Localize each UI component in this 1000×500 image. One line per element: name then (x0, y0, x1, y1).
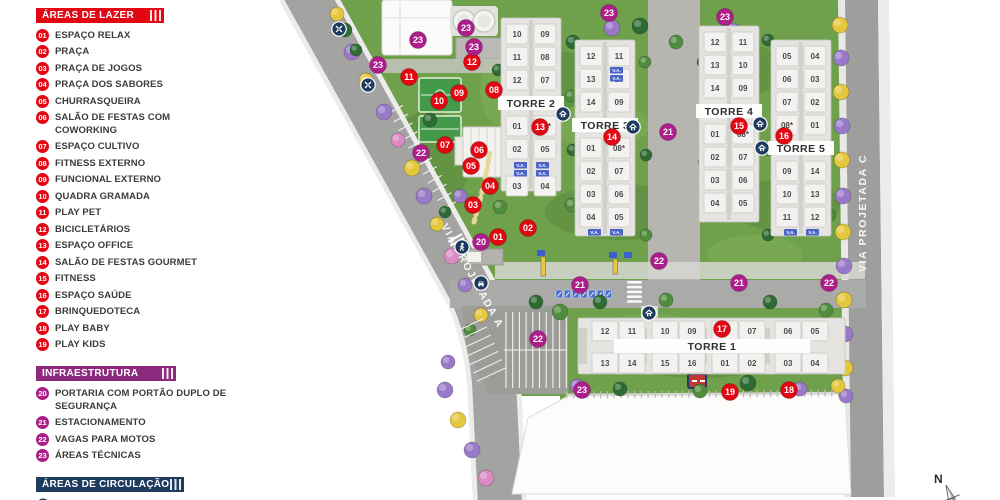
tree-icon (835, 188, 851, 204)
pedestrian-access-icon (455, 240, 469, 254)
unit-label: 11 (739, 38, 748, 47)
legend-section-lazer: ÁREAS DE LAZER 01ESPAÇO RELAX02PRAÇA03PR… (36, 8, 251, 351)
legend-number-badge: 01 (36, 29, 49, 42)
map-marker-infra-21: 21 (660, 124, 677, 141)
legend-header-lazer-text: ÁREAS DE LAZER (42, 10, 134, 21)
legend-header-lazer: ÁREAS DE LAZER (36, 8, 164, 23)
hall-access-icon (755, 141, 769, 155)
unit-label: 13 (811, 190, 820, 199)
unit-label: 02 (513, 145, 522, 154)
header-stripes-icon (170, 479, 181, 490)
tower-torre-2: 10111209080701020306*0504V.A.V.A.V.A.V.A… (498, 18, 564, 196)
unit-label: 05 (615, 213, 624, 222)
unit-label: 03 (784, 359, 793, 368)
unit-label: 12 (513, 76, 522, 85)
unit-label: 16 (688, 359, 697, 368)
map-marker-number: 16 (779, 131, 789, 141)
legend-header-circulacao-text: ÁREAS DE CIRCULAÇÃO (42, 479, 169, 490)
unit-label: 06 (739, 176, 748, 185)
map-marker-number: 11 (404, 72, 414, 82)
unit-label: 06 (615, 190, 624, 199)
map-marker-number: 15 (734, 121, 744, 131)
map-marker-number: 23 (373, 60, 383, 70)
unit-label: 12 (711, 38, 720, 47)
map-marker-number: 04 (485, 181, 495, 191)
legend-item-21: 21ESTACIONAMENTO (36, 416, 251, 429)
unit-label: 05 (739, 199, 748, 208)
legend-item-18: 18PLAY BABY (36, 322, 251, 335)
unit-label: 06 (784, 327, 793, 336)
map-marker-number: 10 (434, 96, 444, 106)
unit-label: 07 (739, 153, 748, 162)
legend-number-badge: 02 (36, 45, 49, 58)
unit-label: 09 (739, 84, 748, 93)
unit-label: 02 (711, 153, 720, 162)
va-badge-label: V.A. (538, 163, 547, 168)
map-marker-number: 23 (413, 35, 423, 45)
legend-item-label: QUADRA GRAMADA (55, 190, 230, 203)
map-marker-infra-23: 23 (601, 5, 618, 22)
tree-icon (832, 17, 848, 33)
tree-icon (819, 303, 833, 317)
map-marker-infra-22: 22 (651, 253, 668, 270)
legend-number-badge: 17 (36, 305, 49, 318)
unit-label: 01 (513, 122, 522, 131)
legend-item-05: 05CHURRASQUEIRA (36, 95, 251, 108)
unit-label: 10 (783, 190, 792, 199)
unit-label: 07 (615, 167, 624, 176)
unit-label: 11 (513, 53, 522, 62)
map-marker-lazer-18: 18 (781, 382, 798, 399)
map-marker-lazer-05: 05 (463, 158, 480, 175)
compass: N (934, 472, 962, 500)
map-marker-lazer-15: 15 (731, 118, 748, 135)
map-marker-lazer-03: 03 (465, 197, 482, 214)
legend-number-badge: 21 (36, 416, 49, 429)
legend-number-badge: 09 (36, 173, 49, 186)
legend-item-17: 17BRINQUEDOTECA (36, 305, 251, 318)
tree-icon (613, 382, 627, 396)
legend-item-15: 15FITNESS (36, 272, 251, 285)
legend-header-infra-text: INFRAESTRUTURA (42, 368, 138, 379)
map-marker-infra-23: 23 (458, 20, 475, 37)
map-marker-infra-22: 22 (530, 331, 547, 348)
legend-item-label: CHURRASQUEIRA (55, 95, 230, 108)
legend-number-badge: 03 (36, 62, 49, 75)
unit-label: 10 (661, 327, 670, 336)
map-marker-number: 12 (467, 57, 477, 67)
legend-item-10: 10QUADRA GRAMADA (36, 190, 251, 203)
vehicle-access-icon (474, 276, 488, 290)
unit-label: 09 (783, 167, 792, 176)
map-marker-number: 03 (468, 200, 478, 210)
unit-label: 14 (628, 359, 637, 368)
legend-item-16: 16ESPAÇO SAÚDE (36, 289, 251, 302)
legend-item-09: 09FUNCIONAL EXTERNO (36, 173, 251, 186)
unit-label: 11 (783, 213, 792, 222)
tree-icon (453, 189, 467, 203)
tree-icon (833, 84, 849, 100)
map-marker-lazer-07: 07 (437, 137, 454, 154)
tree-icon (441, 355, 455, 369)
map-marker-infra-23: 23 (717, 9, 734, 26)
map-marker-infra-23: 23 (466, 39, 483, 56)
tree-icon (391, 133, 405, 147)
map-marker-number: 22 (824, 278, 834, 288)
map-marker-lazer-06: 06 (471, 142, 488, 159)
unit-label: 02 (811, 98, 820, 107)
tree-icon (834, 118, 850, 134)
legend-item-label: FITNESS (55, 272, 230, 285)
tree-icon (450, 412, 466, 428)
legend-section-infra: INFRAESTRUTURA 20PORTARIA COM PORTÃO DUP… (36, 366, 251, 462)
unit-label: 04 (541, 182, 550, 191)
map-marker-number: 13 (535, 122, 545, 132)
map-marker-lazer-19: 19 (722, 384, 739, 401)
legend-item-11: 11PLAY PET (36, 206, 251, 219)
legend-item-label: SALÃO DE FESTAS COM COWORKING (55, 111, 230, 137)
legend-item-12: 12BICICLETÁRIOS (36, 223, 251, 236)
unit-label: 04 (587, 213, 596, 222)
header-stripes-icon (162, 368, 173, 379)
legend-item-19: 19PLAY KIDS (36, 338, 251, 351)
tower-name-label: TORRE 1 (688, 341, 737, 353)
legend-header-circulacao: ÁREAS DE CIRCULAÇÃO (36, 477, 184, 492)
legend-item-label: PRAÇA DE JOGOS (55, 62, 230, 75)
map-marker-infra-20: 20 (473, 234, 490, 251)
map-marker-number: 21 (663, 127, 673, 137)
tree-icon (836, 292, 852, 308)
tower-name-label: TORRE 3 (581, 120, 630, 132)
map-marker-number: 02 (523, 223, 533, 233)
tree-icon (834, 152, 850, 168)
legend-items-lazer: 01ESPAÇO RELAX02PRAÇA03PRAÇA DE JOGOS04P… (36, 29, 251, 351)
legend-number-badge: 05 (36, 95, 49, 108)
unit-label: 14 (587, 98, 596, 107)
map-marker-infra-22: 22 (413, 145, 430, 162)
va-badge-label: V.A. (516, 171, 525, 176)
legend-number-badge: 16 (36, 289, 49, 302)
unit-label: 12 (601, 327, 610, 336)
header-stripes-icon (150, 10, 161, 21)
tree-icon (640, 149, 652, 161)
tree-icon (639, 56, 651, 68)
legend-number-badge: 06 (36, 111, 49, 124)
legend-number-badge: 19 (36, 338, 49, 351)
unit-label: 10 (513, 30, 522, 39)
legend-items-infra: 20PORTARIA COM PORTÃO DUPLO DE SEGURANÇA… (36, 387, 251, 462)
map-marker-number: 22 (654, 256, 664, 266)
tree-icon (833, 50, 849, 66)
map-marker-number: 08 (489, 85, 499, 95)
legend-section-circulacao: ÁREAS DE CIRCULAÇÃO ACESSO DE PEDESTRESA… (36, 477, 251, 500)
unit-label: 01 (811, 121, 820, 130)
legend-item-label: BRINQUEDOTECA (55, 305, 230, 318)
map-marker-lazer-09: 09 (451, 85, 468, 102)
map-marker-lazer-11: 11 (401, 69, 418, 86)
unit-label: 10 (739, 61, 748, 70)
unit-label: 04 (811, 359, 820, 368)
legend-item-label: ESPAÇO CULTIVO (55, 140, 230, 153)
unit-label: 03 (513, 182, 522, 191)
unit-label: 04 (811, 52, 820, 61)
unit-label: 12 (811, 213, 820, 222)
horizontal-road (450, 280, 866, 308)
site-plan-page: 1211100908*0706051314151601020304TORRE 1… (0, 0, 1000, 500)
legend-item-02: 02PRAÇA (36, 45, 251, 58)
south-lot (512, 393, 851, 494)
unit-label: 08 (541, 53, 550, 62)
map-marker-number: 23 (577, 385, 587, 395)
legend-item-label: VAGAS PARA MOTOS (55, 433, 230, 446)
tree-icon (604, 20, 620, 36)
tree-icon (552, 304, 568, 320)
road-label-via-projetada-c: VIA PROJETADA C (857, 154, 869, 272)
va-badge-label: V.A. (808, 230, 817, 235)
map-marker-number: 23 (469, 42, 479, 52)
unit-label: 09 (688, 327, 697, 336)
map-marker-lazer-13: 13 (532, 119, 549, 136)
map-marker-number: 19 (725, 387, 735, 397)
legend-number-badge: 13 (36, 239, 49, 252)
map-marker-number: 01 (493, 232, 503, 242)
map-marker-lazer-14: 14 (604, 129, 621, 146)
legend-number-badge: 15 (36, 272, 49, 285)
legend-item-23: 23ÁREAS TÉCNICAS (36, 449, 251, 462)
legend-number-badge: 04 (36, 78, 49, 91)
tree-icon (835, 224, 851, 240)
compass-north-label: N (934, 472, 943, 486)
legend-item-06: 06SALÃO DE FESTAS COM COWORKING (36, 111, 251, 137)
map-marker-number: 23 (461, 23, 471, 33)
map-marker-number: 09 (454, 88, 464, 98)
south-lot-area (512, 394, 851, 494)
va-badge-label: V.A. (612, 68, 621, 73)
tower-torre-4: 1213141110090102030408*070605TORRE 4 (696, 26, 762, 222)
unit-label: 14 (811, 167, 820, 176)
tree-icon (330, 7, 344, 21)
map-marker-number: 21 (575, 280, 585, 290)
map-marker-infra-23: 23 (410, 32, 427, 49)
map-marker-number: 23 (720, 12, 730, 22)
unit-label: 01 (721, 359, 730, 368)
unit-label: 01 (711, 130, 720, 139)
legend-number-badge: 20 (36, 387, 49, 400)
legend-item-label: BICICLETÁRIOS (55, 223, 230, 236)
tree-icon (416, 188, 432, 204)
unit-label: 13 (711, 61, 720, 70)
tree-icon (423, 113, 437, 127)
legend-item-label: PLAY PET (55, 206, 230, 219)
unit-label: 12 (587, 52, 596, 61)
legend-item-label: ESPAÇO RELAX (55, 29, 230, 42)
tree-icon (529, 295, 543, 309)
legend-number-badge: 18 (36, 322, 49, 335)
map-marker-lazer-17: 17 (714, 321, 731, 338)
walkway-band (495, 262, 865, 279)
map-marker-lazer-12: 12 (464, 54, 481, 71)
legend-item-label: PRAÇA DOS SABORES (55, 78, 230, 91)
map-marker-infra-21: 21 (572, 277, 589, 294)
unit-label: 07 (783, 98, 792, 107)
tree-icon (376, 104, 392, 120)
legend-number-badge: 23 (36, 449, 49, 462)
unit-label: 05 (541, 145, 550, 154)
unit-label: 11 (615, 52, 624, 61)
hall-access-icon (556, 107, 570, 121)
legend-item-22: 22VAGAS PARA MOTOS (36, 433, 251, 446)
legend-item-label: ESTACIONAMENTO (55, 416, 230, 429)
tree-icon (669, 35, 683, 49)
unit-label: 09 (541, 30, 550, 39)
map-marker-lazer-01: 01 (490, 229, 507, 246)
legend-item-07: 07ESPAÇO CULTIVO (36, 140, 251, 153)
unit-label: 14 (711, 84, 720, 93)
va-badge-label: V.A. (538, 171, 547, 176)
unit-label: 13 (587, 75, 596, 84)
hall-access-icon (642, 306, 656, 320)
unit-label: 15 (661, 359, 670, 368)
legend-panel: ÁREAS DE LAZER 01ESPAÇO RELAX02PRAÇA03PR… (36, 8, 251, 500)
legend-item-label: FUNCIONAL EXTERNO (55, 173, 230, 186)
unit-label: 07 (541, 76, 550, 85)
tree-icon (740, 375, 756, 391)
map-marker-infra-23: 23 (574, 382, 591, 399)
map-marker-number: 22 (416, 148, 426, 158)
unit-label: 09 (615, 98, 624, 107)
map-marker-number: 22 (533, 334, 543, 344)
unit-label: 05 (811, 327, 820, 336)
service-access-icon (332, 22, 346, 36)
unit-label: 02 (587, 167, 596, 176)
unit-label: 02 (748, 359, 757, 368)
legend-item-label: SALÃO DE FESTAS GOURMET (55, 256, 230, 269)
unit-label: 03 (587, 190, 596, 199)
unit-label: 05 (783, 52, 792, 61)
legend-item-label: ESPAÇO OFFICE (55, 239, 230, 252)
va-badge-label: V.A. (516, 163, 525, 168)
hall-access-icon (753, 117, 767, 131)
legend-item-03: 03PRAÇA DE JOGOS (36, 62, 251, 75)
tree-icon (831, 379, 845, 393)
legend-item-08: 08FITNESS EXTERNO (36, 157, 251, 170)
tree-icon (350, 44, 362, 56)
legend-item-label: ESPAÇO SAÚDE (55, 289, 230, 302)
map-marker-lazer-08: 08 (486, 82, 503, 99)
map-marker-number: 17 (717, 324, 727, 334)
tree-icon (693, 384, 707, 398)
legend-header-infra: INFRAESTRUTURA (36, 366, 176, 381)
map-marker-infra-22: 22 (821, 275, 838, 292)
legend-item-label: PRAÇA (55, 45, 230, 58)
tree-icon (478, 470, 494, 486)
unit-label: 06 (783, 75, 792, 84)
legend-number-badge: 22 (36, 433, 49, 446)
legend-item-label: PLAY BABY (55, 322, 230, 335)
legend-number-badge: 14 (36, 256, 49, 269)
va-badge-label: V.A. (612, 76, 621, 81)
map-marker-number: 20 (476, 237, 486, 247)
map-marker-number: 07 (440, 140, 450, 150)
legend-item-label: PLAY KIDS (55, 338, 230, 351)
legend-number-badge: 07 (36, 140, 49, 153)
unit-label: 04 (711, 199, 720, 208)
tree-icon (640, 229, 652, 241)
legend-number-badge: 08 (36, 157, 49, 170)
legend-number-badge: 11 (36, 206, 49, 219)
map-marker-lazer-10: 10 (431, 93, 448, 110)
tree-icon (763, 295, 777, 309)
tree-icon (836, 258, 852, 274)
tree-icon (437, 382, 453, 398)
tree-icon (404, 160, 420, 176)
va-badge-label: V.A. (612, 230, 621, 235)
tree-icon (493, 200, 507, 214)
map-marker-infra-21: 21 (731, 275, 748, 292)
legend-number-badge: 10 (36, 190, 49, 203)
legend-item-label: ÁREAS TÉCNICAS (55, 449, 230, 462)
map-marker-number: 18 (784, 385, 794, 395)
legend-item-04: 04PRAÇA DOS SABORES (36, 78, 251, 91)
tree-icon (632, 18, 648, 34)
va-badge-label: V.A. (786, 230, 795, 235)
legend-item-13: 13ESPAÇO OFFICE (36, 239, 251, 252)
unit-label: 11 (628, 327, 637, 336)
map-marker-number: 14 (607, 132, 617, 142)
unit-label: 03 (711, 176, 720, 185)
map-marker-number: 06 (474, 145, 484, 155)
unit-label: 13 (601, 359, 610, 368)
hall-access-icon (626, 120, 640, 134)
legend-item-20: 20PORTARIA COM PORTÃO DUPLO DE SEGURANÇA (36, 387, 251, 413)
tree-icon (464, 442, 480, 458)
va-badge-label: V.A. (590, 230, 599, 235)
tree-icon (439, 206, 451, 218)
unit-label: 01 (587, 144, 596, 153)
map-marker-number: 05 (466, 161, 476, 171)
legend-item-14: 14SALÃO DE FESTAS GOURMET (36, 256, 251, 269)
tower-name-label: TORRE 2 (507, 98, 556, 110)
map-marker-lazer-16: 16 (776, 128, 793, 145)
tower-name-label: TORRE 4 (705, 106, 754, 118)
legend-item-01: 01ESPAÇO RELAX (36, 29, 251, 42)
map-marker-lazer-04: 04 (482, 178, 499, 195)
map-marker-infra-23: 23 (370, 57, 387, 74)
map-marker-lazer-02: 02 (520, 220, 537, 237)
tree-icon (593, 295, 607, 309)
tree-icon (659, 293, 673, 307)
legend-number-badge: 12 (36, 223, 49, 236)
tower-torre-1: 1211100908*0706051314151601020304TORRE 1 (578, 318, 845, 374)
unit-label: 03 (811, 75, 820, 84)
map-marker-number: 23 (604, 8, 614, 18)
legend-item-label: FITNESS EXTERNO (55, 157, 230, 170)
unit-label: 07 (748, 327, 757, 336)
legend-item-label: PORTARIA COM PORTÃO DUPLO DE SEGURANÇA (55, 387, 230, 413)
map-marker-number: 21 (734, 278, 744, 288)
service-access-icon (361, 78, 375, 92)
